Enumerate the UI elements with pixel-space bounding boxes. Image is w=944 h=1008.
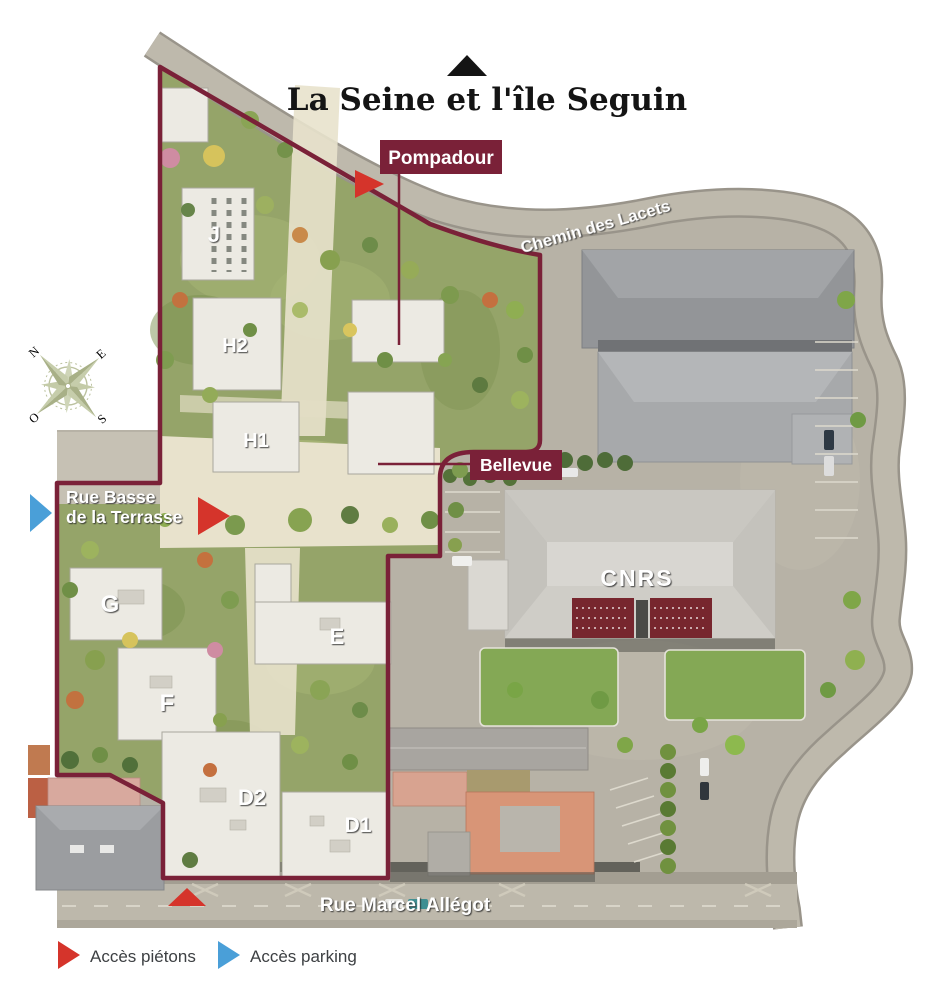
cnrs-lawn-left bbox=[480, 648, 618, 726]
building-label-j: J bbox=[208, 222, 220, 247]
building-label-f: F bbox=[160, 690, 175, 717]
map-title: La Seine et l'île Seguin bbox=[287, 82, 687, 118]
bellevue-label: Bellevue bbox=[480, 455, 552, 475]
north-direction-icon bbox=[447, 55, 487, 76]
building-bellevue-block bbox=[348, 392, 434, 474]
parking-access-arrow bbox=[30, 494, 52, 532]
compass-rose: N E O S bbox=[9, 327, 128, 446]
building-label-e: E bbox=[330, 624, 345, 649]
legend-item-pietons: Accès piétons bbox=[58, 941, 196, 969]
building-d1 bbox=[282, 792, 390, 878]
building-block bbox=[162, 88, 208, 142]
building-e-wing bbox=[255, 564, 291, 602]
legend: Accès piétons Accès parking bbox=[58, 941, 357, 969]
street-label-rue-marcel-allegot: Rue Marcel Allégot bbox=[320, 895, 491, 916]
legend-item-parking: Accès parking bbox=[218, 941, 357, 969]
site-plan-page: Chemin des Lacets Rue Basse de la Terras… bbox=[0, 0, 944, 1008]
parking-access-legend-icon bbox=[218, 941, 240, 969]
bellevue-label-box: Bellevue bbox=[470, 450, 562, 480]
building-e bbox=[255, 602, 391, 664]
pompadour-label: Pompadour bbox=[388, 148, 494, 169]
building-label-h1: H1 bbox=[243, 430, 269, 452]
compass-n: N bbox=[26, 344, 42, 360]
cnrs-label: CNRS bbox=[600, 565, 673, 591]
street-label-rue-basse-line2: de la Terrasse bbox=[66, 507, 183, 527]
building-label-d2: D2 bbox=[238, 785, 266, 810]
pompadour-label-box: Pompadour bbox=[380, 140, 502, 174]
building-label-d1: D1 bbox=[345, 814, 372, 837]
cnrs-lawn-right bbox=[665, 650, 805, 720]
site-plan-map: Chemin des Lacets Rue Basse de la Terras… bbox=[0, 0, 944, 1008]
building-label-g: G bbox=[101, 591, 120, 618]
pedestrian-access-legend-icon bbox=[58, 941, 80, 969]
building-label-h2: H2 bbox=[222, 335, 248, 357]
compass-s: S bbox=[95, 411, 110, 426]
compass-e: E bbox=[93, 346, 108, 362]
legend-label-pietons: Accès piétons bbox=[90, 947, 196, 966]
legend-label-parking: Accès parking bbox=[250, 947, 357, 966]
street-label-rue-basse-line1: Rue Basse bbox=[66, 487, 156, 507]
